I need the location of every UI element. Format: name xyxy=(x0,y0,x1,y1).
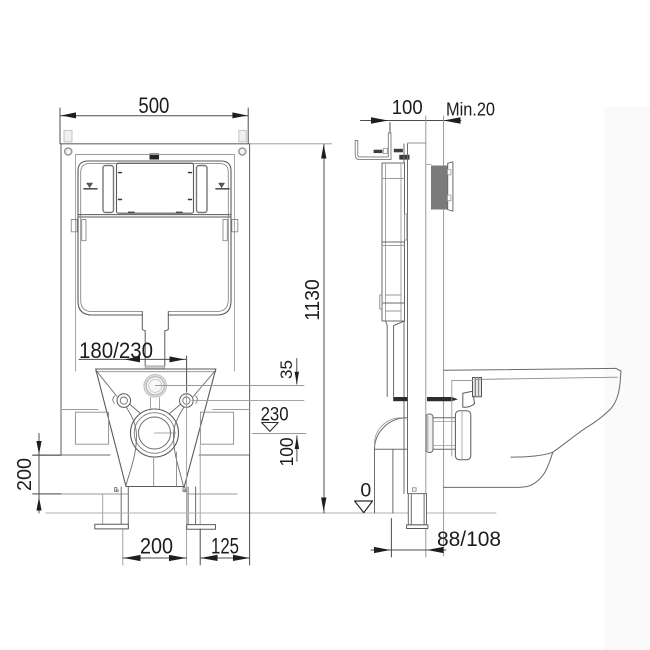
svg-text:0: 0 xyxy=(360,480,371,502)
svg-text:125: 125 xyxy=(211,534,239,559)
svg-text:88/108: 88/108 xyxy=(437,528,501,551)
svg-text:35: 35 xyxy=(277,360,296,379)
svg-text:200: 200 xyxy=(13,458,36,491)
svg-text:500: 500 xyxy=(138,93,169,118)
svg-text:200: 200 xyxy=(140,534,173,559)
svg-text:Min.20: Min.20 xyxy=(446,100,495,120)
svg-text:100: 100 xyxy=(392,97,423,119)
svg-text:1130: 1130 xyxy=(301,279,324,321)
svg-text:100: 100 xyxy=(276,437,297,466)
